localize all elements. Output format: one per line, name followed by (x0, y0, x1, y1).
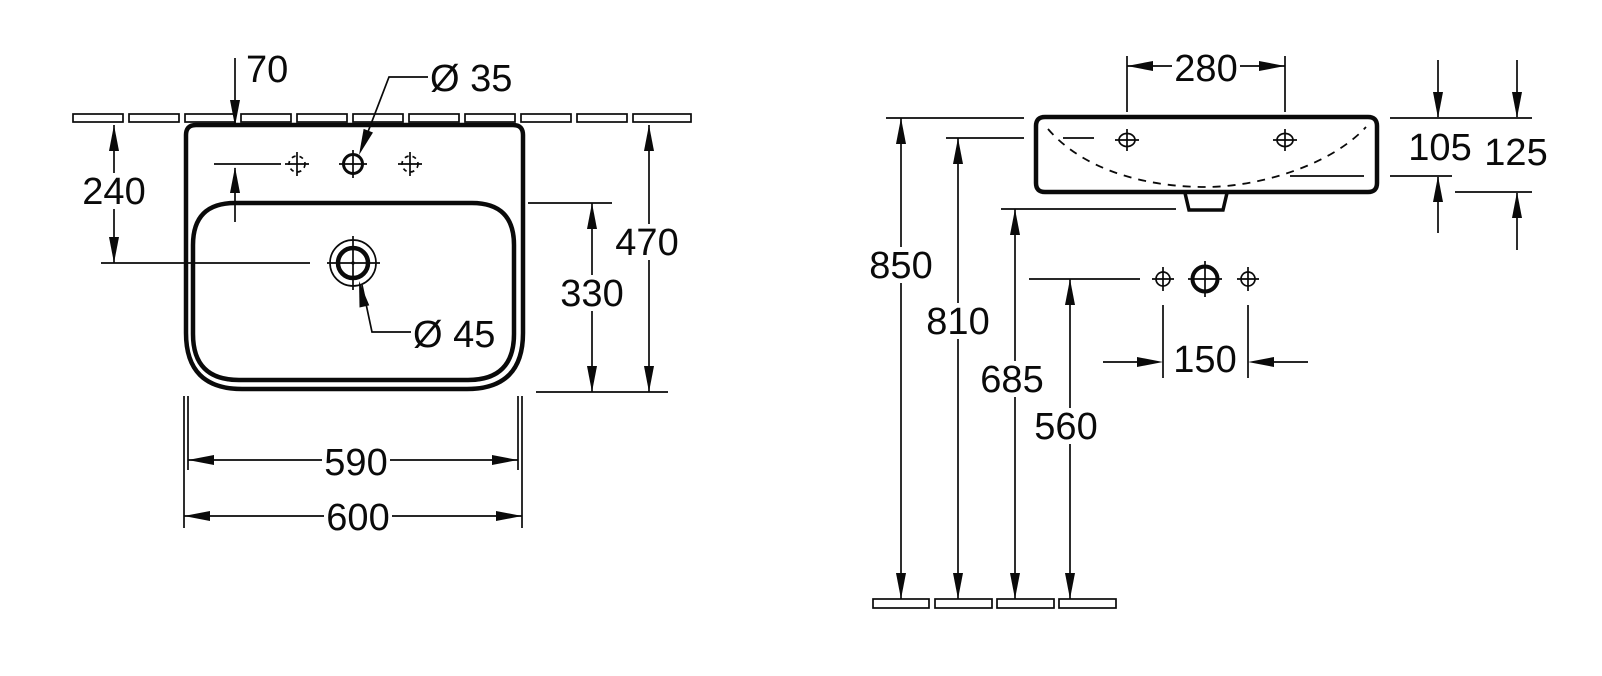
dim-tap-hole-offset: 70 (214, 49, 288, 222)
dim-tap-hole-diameter-label: Ø 35 (430, 58, 512, 100)
front-view: 70 Ø 35 240 470 (73, 49, 691, 539)
dim-underside-height-label: 685 (980, 359, 1043, 401)
fixing-hole-left (1115, 129, 1139, 151)
dim-inner-width-label: 590 (324, 442, 387, 484)
dim-rim-to-overflow-label: 105 (1408, 127, 1471, 169)
dim-fixing-hole-spacing-label: 280 (1174, 48, 1237, 90)
dim-outlet-height: 560 (1029, 279, 1140, 599)
dim-overall-depth-label: 470 (615, 222, 678, 264)
dim-fixing-height-label: 810 (926, 301, 989, 343)
tap-hole-right (398, 152, 422, 176)
dim-underside-height: 685 (978, 209, 1176, 599)
dim-rim-to-overflow: 105 (1390, 60, 1472, 233)
outlet-spigot (1185, 193, 1227, 210)
dim-wall-hole-spacing: 150 (1103, 305, 1308, 381)
dim-bowl-depth-label: 330 (560, 273, 623, 315)
dim-ceramic-height-label: 125 (1484, 132, 1547, 174)
floor-hatch (873, 599, 1116, 608)
bowl-contour-hidden (1048, 127, 1366, 187)
dim-wall-hole-spacing-label: 150 (1173, 339, 1236, 381)
dim-overall-depth: 470 (536, 125, 681, 392)
drain-hole (327, 236, 380, 290)
fixing-hole-right (1273, 129, 1297, 151)
dim-outlet-height-label: 560 (1034, 406, 1097, 448)
dim-fixing-hole-spacing: 280 (1127, 48, 1285, 112)
side-view: 280 105 125 850 (867, 48, 1548, 608)
dim-drain-diameter-label: Ø 45 (413, 314, 495, 356)
dim-overall-width-label: 600 (326, 497, 389, 539)
dim-wall-to-drain-label: 240 (82, 171, 145, 213)
dim-bowl-depth: 330 (528, 203, 626, 392)
dim-drain-diameter: Ø 45 (354, 280, 495, 356)
technical-drawing-canvas: 70 Ø 35 240 470 (0, 0, 1602, 676)
tap-hole-left (285, 152, 309, 176)
wall-hatch (73, 114, 691, 122)
technical-drawing-page: 70 Ø 35 240 470 (0, 0, 1602, 676)
tap-hole-center (339, 150, 367, 178)
drain-pipe-hole (1188, 261, 1222, 297)
dim-tap-hole-offset-label: 70 (246, 49, 288, 91)
pipe-hole-left (1152, 267, 1174, 291)
dim-inner-width: 590 (188, 396, 518, 484)
pipe-hole-right (1237, 267, 1259, 291)
dim-tap-hole-diameter: Ø 35 (354, 58, 512, 157)
basin-profile (1036, 117, 1377, 192)
dim-rim-height-label: 850 (869, 245, 932, 287)
